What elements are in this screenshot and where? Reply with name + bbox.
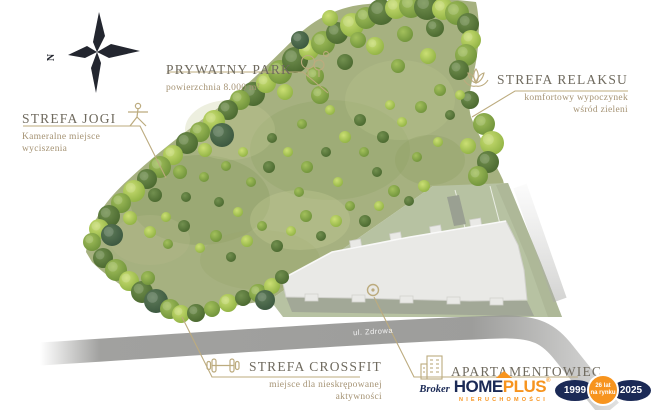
relax-zone-title: STREFA RELAKSU: [497, 72, 628, 88]
roof-icon: [496, 371, 512, 378]
relax-zone-label: STREFA RELAKSU komfortowy wypoczynek wśr…: [461, 66, 628, 117]
compass-rose: [68, 12, 140, 93]
homeplus-logo[interactable]: Broker HOMEPLUS® NIERUCHOMOŚCI 1999 26 l…: [419, 374, 651, 406]
yoga-zone-title: STREFA JOGI: [22, 111, 116, 127]
relax-zone-subtitle: komfortowy wypoczynek wśród zieleni: [506, 93, 628, 117]
site-plan: N PRYWATNY PARK powierzchnia 8.000 m² ST…: [0, 0, 654, 410]
logo-prefix: Broker: [419, 384, 449, 395]
compass-north-letter: N: [46, 54, 57, 61]
crossfit-zone-title: STREFA CROSSFIT: [249, 359, 382, 375]
dumbbell-icon: [203, 356, 243, 375]
crossfit-zone-label: STREFA CROSSFIT miejsce dla nieskrępowan…: [203, 356, 382, 404]
yoga-zone-label: STREFA JOGI Kameralne miejsce wyciszenia: [22, 102, 152, 156]
yoga-zone-subtitle: Kameralne miejsce wyciszenia: [22, 132, 118, 156]
trees-icon: [298, 50, 330, 78]
yoga-figure-icon: [122, 102, 152, 127]
private-park-subtitle: powierzchnia 8.000 m²: [166, 83, 330, 95]
crossfit-zone-subtitle: miejsce dla nieskrępowanej aktywności: [264, 380, 382, 404]
registered-mark: ®: [546, 378, 550, 384]
anniversary-badges: 1999 26 lat na rynku 2025: [555, 374, 651, 406]
private-park-title: PRYWATNY PARK: [166, 62, 292, 78]
lotus-icon: [461, 66, 491, 88]
logo-tagline: NIERUCHOMOŚCI: [459, 397, 548, 403]
private-park-label: PRYWATNY PARK powierzchnia 8.000 m²: [166, 50, 330, 95]
badge-26-lat: 26 lat na rynku: [587, 374, 619, 406]
logo-wordmark: HOMEPLUS®: [454, 378, 550, 395]
